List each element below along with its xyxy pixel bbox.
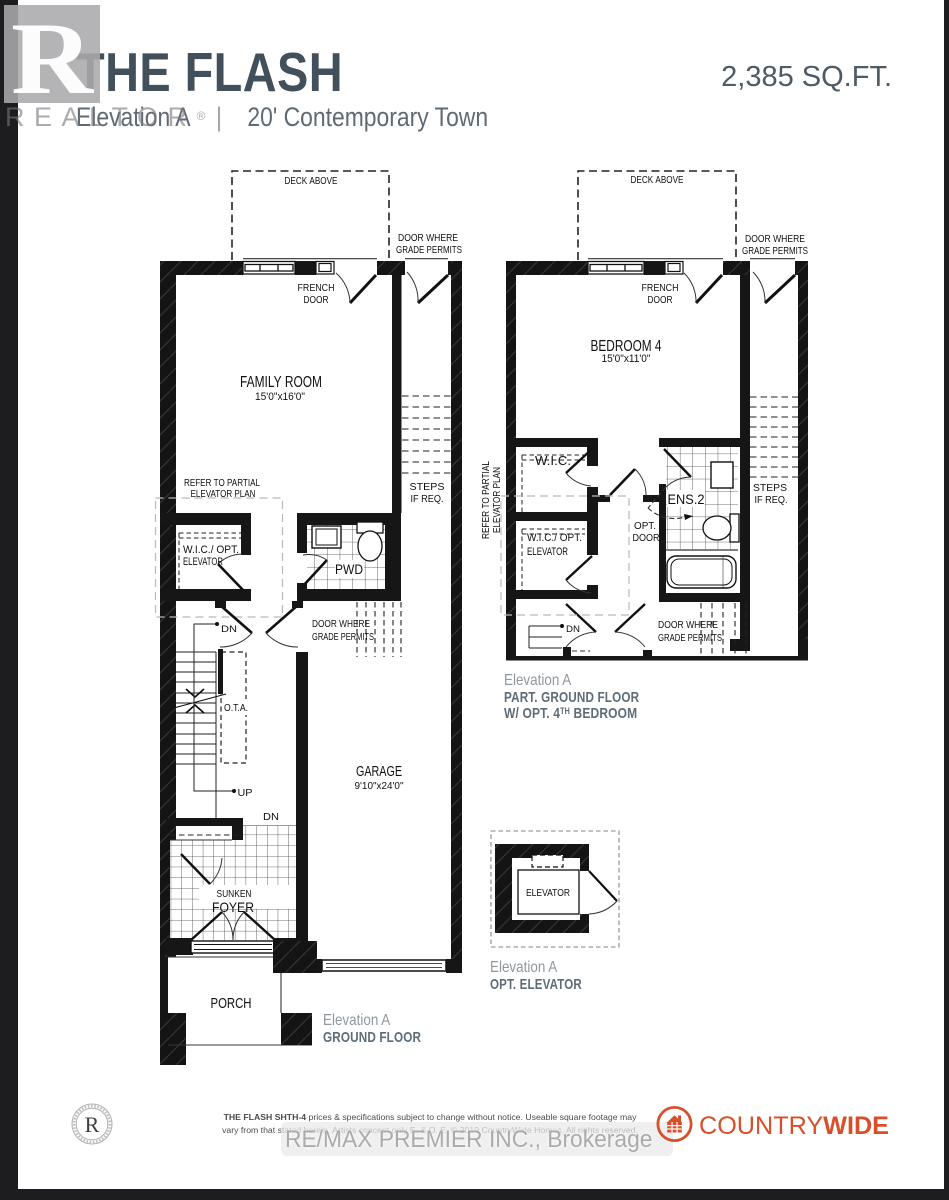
svg-text:IF REQ.: IF REQ. <box>755 494 788 506</box>
svg-text:ELEVATOR PLAN: ELEVATOR PLAN <box>191 489 256 500</box>
svg-text:DOOR WHERE: DOOR WHERE <box>398 232 458 244</box>
svg-text:DECK ABOVE: DECK ABOVE <box>631 174 684 186</box>
svg-text:DN: DN <box>566 624 580 635</box>
svg-text:DN: DN <box>263 812 279 823</box>
svg-text:15'0"x11'0": 15'0"x11'0" <box>602 353 651 365</box>
svg-text:UP: UP <box>238 788 253 799</box>
svg-text:ELEVATOR: ELEVATOR <box>527 546 568 558</box>
svg-text:R: R <box>85 1112 100 1137</box>
svg-text:STEPS: STEPS <box>753 482 787 494</box>
svg-text:IF REQ.: IF REQ. <box>411 493 444 505</box>
svg-text:ENS.2: ENS.2 <box>668 492 705 507</box>
svg-text:FAMILY ROOM: FAMILY ROOM <box>240 374 322 391</box>
svg-text:GRADE PERMITS: GRADE PERMITS <box>742 245 808 257</box>
svg-text:DN: DN <box>221 624 237 635</box>
svg-text:GRADE PERMITS: GRADE PERMITS <box>658 632 722 644</box>
svg-text:DOOR: DOOR <box>633 532 660 544</box>
svg-text:PWD: PWD <box>335 562 363 577</box>
svg-text:DOOR WHERE: DOOR WHERE <box>658 619 718 631</box>
svg-text:DOOR: DOOR <box>304 294 329 306</box>
svg-text:DECK ABOVE: DECK ABOVE <box>285 175 338 187</box>
svg-text:DOOR WHERE: DOOR WHERE <box>745 233 805 245</box>
svg-text:DOOR WHERE: DOOR WHERE <box>312 618 370 630</box>
svg-text:GARAGE: GARAGE <box>356 764 402 780</box>
svg-text:DOOR: DOOR <box>648 294 673 306</box>
svg-text:GRADE PERMITS: GRADE PERMITS <box>312 631 374 643</box>
svg-text:FOYER: FOYER <box>212 899 254 915</box>
svg-text:FRENCH: FRENCH <box>298 282 335 294</box>
svg-text:GRADE PERMITS: GRADE PERMITS <box>396 244 462 256</box>
svg-text:ELEVATOR PLAN: ELEVATOR PLAN <box>492 467 503 533</box>
svg-text:ELEVATOR: ELEVATOR <box>526 887 570 899</box>
svg-text:COUNTRYWIDE: COUNTRYWIDE <box>699 1112 889 1140</box>
svg-text:OPT.: OPT. <box>634 520 656 532</box>
svg-text:15'0"x16'0": 15'0"x16'0" <box>255 391 305 403</box>
svg-text:O.T.A.: O.T.A. <box>224 702 248 714</box>
svg-text:9'10"x24'0": 9'10"x24'0" <box>355 780 404 792</box>
svg-text:W.I.C./ OPT.: W.I.C./ OPT. <box>527 532 582 544</box>
svg-text:ELEVATOR: ELEVATOR <box>183 556 223 568</box>
svg-text:REFER TO PARTIAL: REFER TO PARTIAL <box>184 478 260 489</box>
svg-text:PORCH: PORCH <box>211 996 252 1012</box>
svg-text:W.I.C./ OPT.: W.I.C./ OPT. <box>183 544 239 556</box>
svg-text:FRENCH: FRENCH <box>642 282 679 294</box>
svg-text:STEPS: STEPS <box>410 481 445 493</box>
svg-text:REFER TO PARTIAL: REFER TO PARTIAL <box>481 461 492 539</box>
svg-text:W.I.C.: W.I.C. <box>535 454 571 468</box>
